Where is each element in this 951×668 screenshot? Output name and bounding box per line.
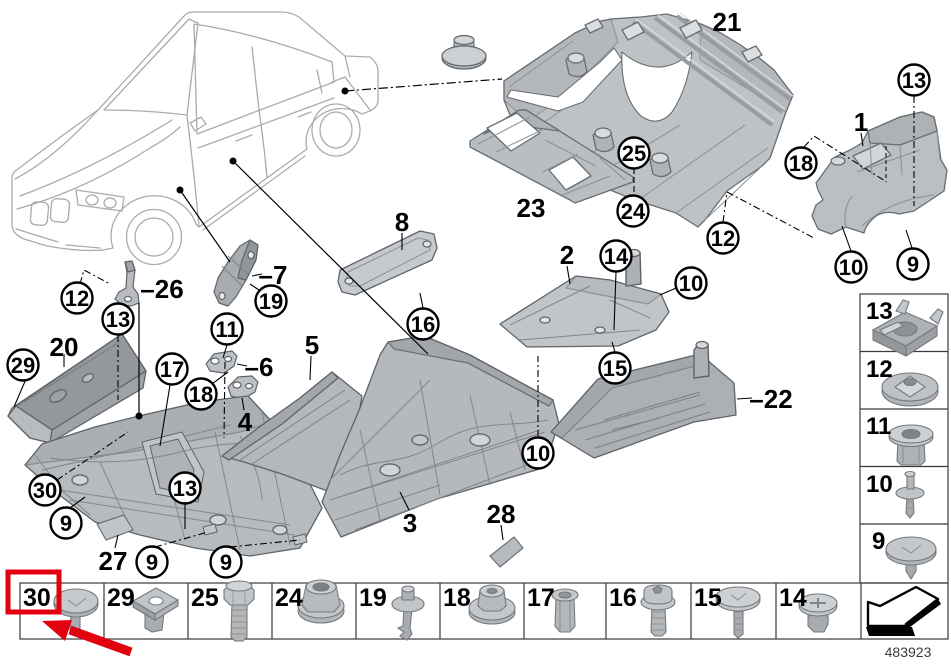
svg-text:15: 15	[694, 584, 722, 612]
svg-text:16: 16	[411, 312, 435, 337]
svg-text:25: 25	[622, 141, 646, 166]
svg-text:23: 23	[517, 193, 546, 223]
svg-text:24: 24	[621, 199, 646, 224]
svg-text:12: 12	[711, 226, 735, 251]
svg-text:5: 5	[305, 330, 319, 360]
svg-text:9: 9	[146, 550, 158, 575]
svg-text:13: 13	[106, 307, 130, 332]
svg-text:10: 10	[839, 255, 863, 280]
svg-text:29: 29	[107, 584, 135, 612]
svg-text:20: 20	[50, 332, 79, 362]
svg-text:9: 9	[220, 550, 232, 575]
svg-text:13: 13	[173, 476, 197, 501]
svg-text:13: 13	[902, 68, 926, 93]
svg-text:8: 8	[395, 207, 409, 237]
svg-text:18: 18	[189, 382, 213, 407]
svg-text:483923: 483923	[885, 644, 932, 660]
svg-text:19: 19	[359, 584, 387, 612]
svg-text:30: 30	[33, 478, 57, 503]
svg-text:9: 9	[872, 528, 885, 555]
svg-text:1: 1	[854, 107, 868, 137]
svg-text:4: 4	[238, 407, 253, 437]
svg-text:17: 17	[527, 584, 555, 612]
svg-text:17: 17	[160, 357, 184, 382]
svg-text:21: 21	[713, 7, 742, 37]
svg-text:18: 18	[789, 151, 813, 176]
svg-text:16: 16	[609, 584, 637, 612]
svg-text:9: 9	[60, 511, 72, 536]
svg-text:3: 3	[403, 508, 417, 538]
svg-text:15: 15	[603, 356, 627, 381]
svg-text:14: 14	[779, 584, 807, 612]
svg-text:28: 28	[487, 499, 516, 529]
svg-text:9: 9	[907, 252, 919, 277]
svg-text:–22: –22	[749, 384, 792, 414]
svg-text:10: 10	[526, 441, 550, 466]
svg-text:13: 13	[866, 298, 893, 325]
svg-text:29: 29	[11, 353, 35, 378]
svg-text:12: 12	[65, 286, 89, 311]
svg-text:11: 11	[215, 317, 238, 342]
svg-text:–6: –6	[245, 352, 274, 382]
svg-text:–26: –26	[140, 274, 183, 304]
svg-text:27: 27	[99, 546, 128, 576]
svg-text:10: 10	[866, 471, 893, 498]
svg-text:25: 25	[191, 584, 219, 612]
svg-text:19: 19	[259, 289, 283, 314]
svg-text:14: 14	[604, 244, 629, 269]
svg-text:12: 12	[866, 356, 893, 383]
svg-text:24: 24	[275, 584, 303, 612]
svg-text:11: 11	[866, 413, 891, 440]
svg-text:–7: –7	[259, 260, 288, 290]
svg-text:2: 2	[560, 240, 574, 270]
svg-text:10: 10	[679, 271, 703, 296]
svg-text:18: 18	[443, 584, 471, 612]
svg-text:30: 30	[23, 584, 51, 612]
